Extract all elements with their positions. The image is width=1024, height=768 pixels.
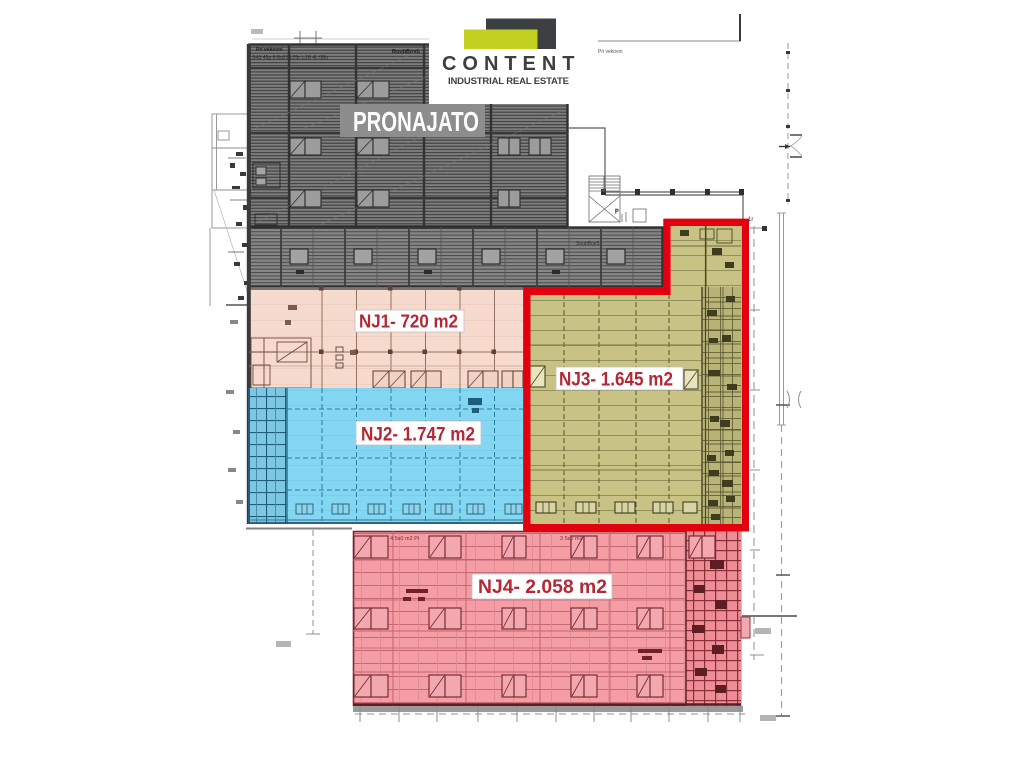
svg-text:Pri vekovni: Pri vekovni xyxy=(598,49,622,55)
svg-text:P: P xyxy=(615,209,619,215)
svg-text:NJ3- 1.645 m2: NJ3- 1.645 m2 xyxy=(559,370,673,391)
svg-text:CONTENT: CONTENT xyxy=(442,53,575,75)
svg-text:INDUSTRIAL REAL ESTATE: INDUSTRIAL REAL ESTATE xyxy=(448,76,569,87)
svg-text:NJ4- 2.058 m2: NJ4- 2.058 m2 xyxy=(478,577,607,598)
svg-text:Pri vekovni: Pri vekovni xyxy=(256,47,283,53)
svg-text:S4S 45p 6 Bq21 L25c L2B 4L 0Bb: S4S 45p 6 Bq21 L25c L2B 4L 0Bb xyxy=(252,55,328,61)
svg-text:PRONAJATO: PRONAJATO xyxy=(353,106,479,137)
svg-text:3 5s0 m2: 3 5s0 m2 xyxy=(560,536,583,542)
svg-text:NJ1- 720 m2: NJ1- 720 m2 xyxy=(359,312,458,332)
svg-text:1r: 1r xyxy=(748,217,753,223)
svg-text:BoubBovb: BoubBovb xyxy=(392,49,420,55)
svg-text:4 5s0 m2 Pi: 4 5s0 m2 Pi xyxy=(390,536,419,542)
svg-text:NJ2- 1.747 m2: NJ2- 1.747 m2 xyxy=(361,425,475,446)
svg-text:SoubBovS: SoubBovS xyxy=(576,241,600,247)
